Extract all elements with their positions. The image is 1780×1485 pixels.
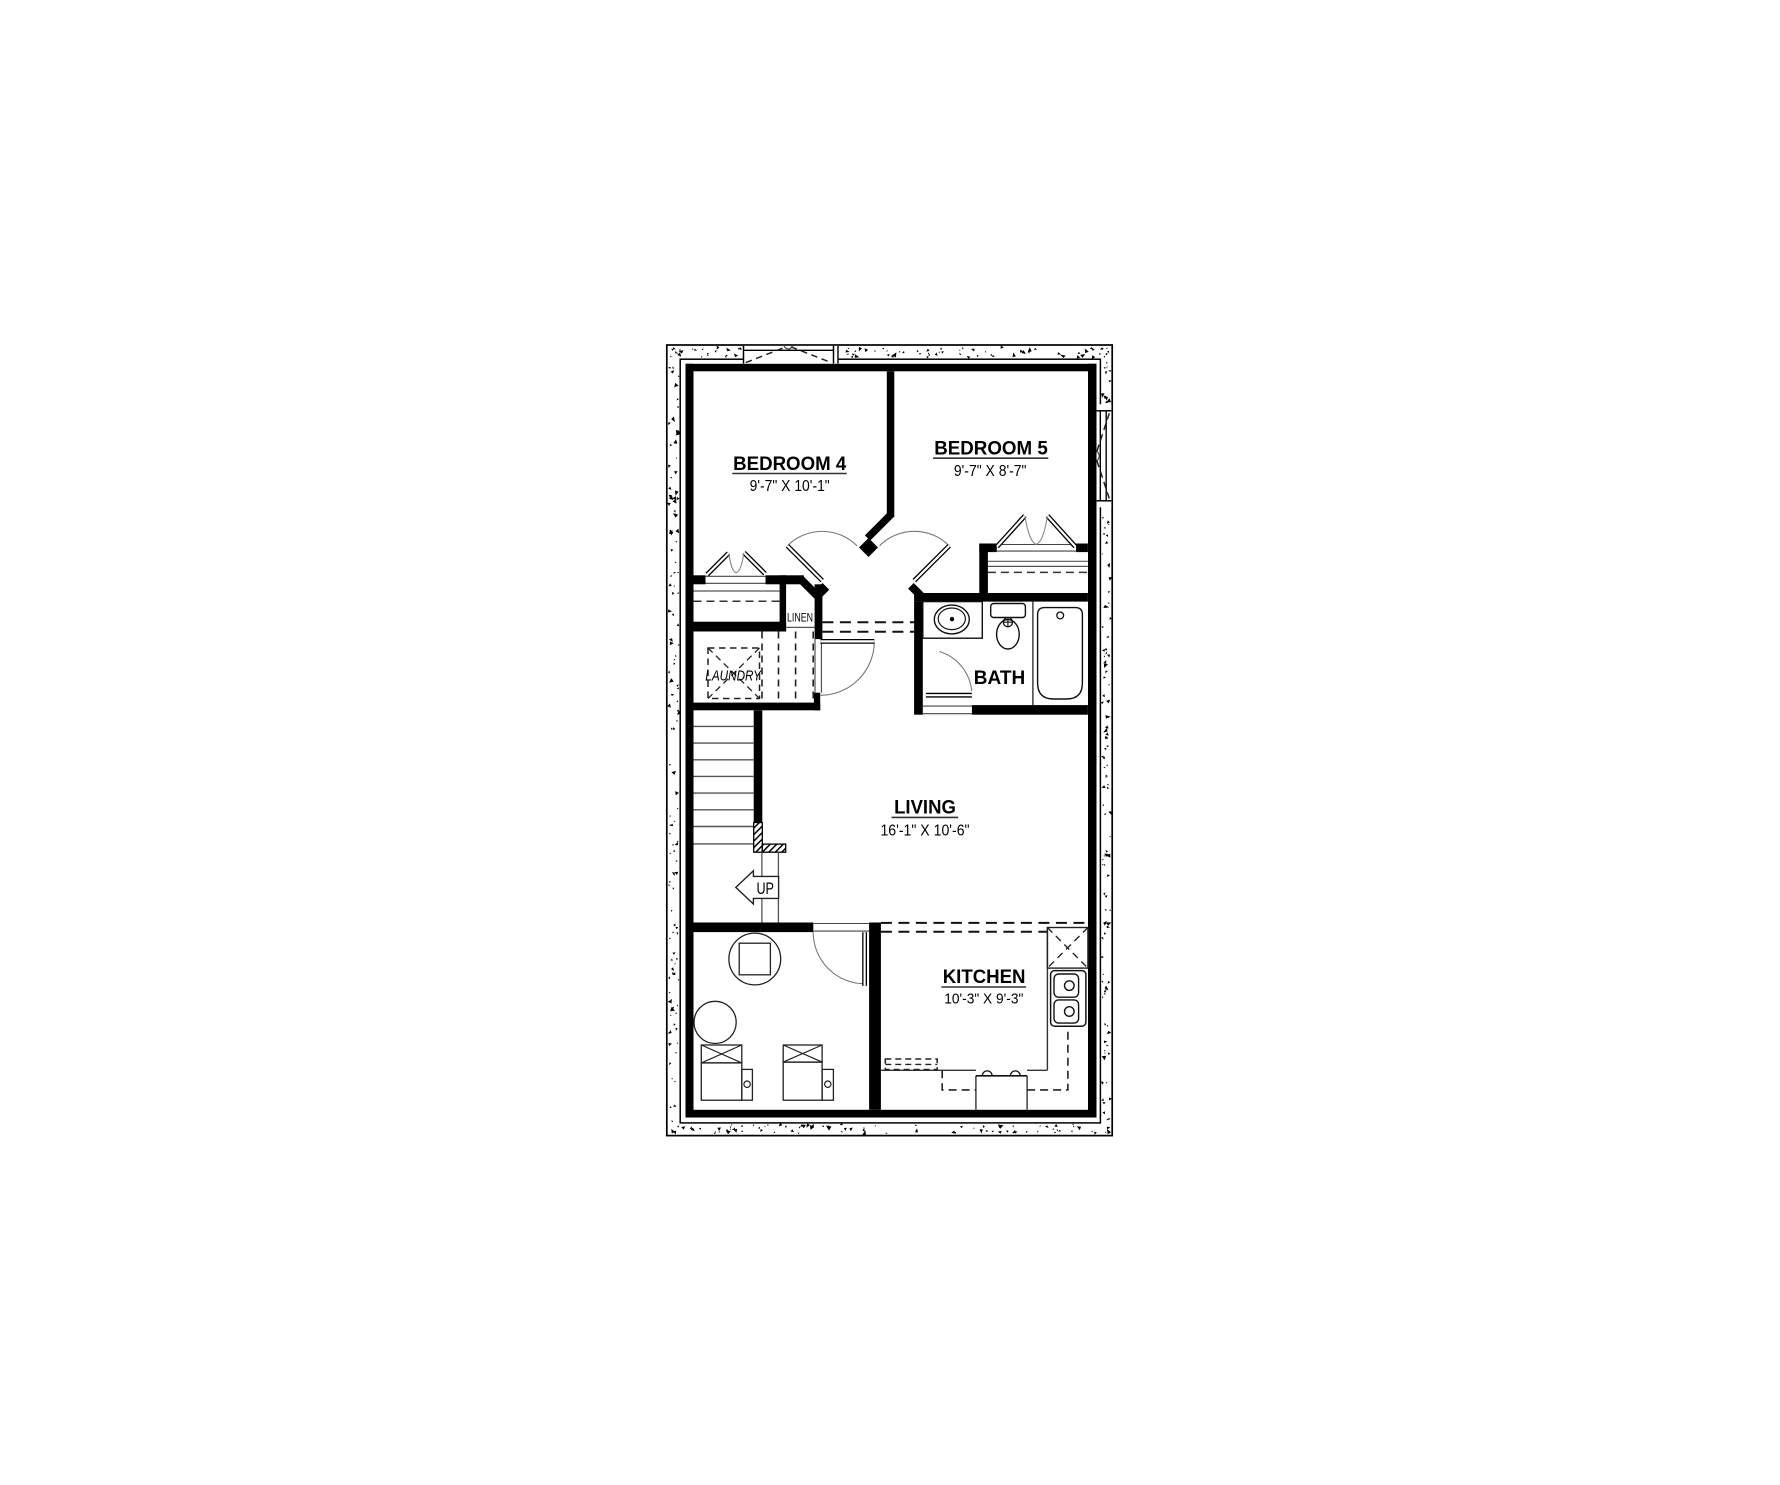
svg-text:UP: UP xyxy=(756,880,774,898)
svg-text:16'-1" X 10'-6": 16'-1" X 10'-6" xyxy=(880,823,969,840)
svg-text:LINEN: LINEN xyxy=(787,610,813,624)
svg-text:BEDROOM 4: BEDROOM 4 xyxy=(733,453,846,475)
svg-text:10'-3" X 9'-3": 10'-3" X 9'-3" xyxy=(944,990,1023,1007)
svg-text:BEDROOM 5: BEDROOM 5 xyxy=(934,438,1048,460)
svg-text:KITCHEN: KITCHEN xyxy=(943,966,1026,988)
svg-text:9'-7" X 10'-1": 9'-7" X 10'-1" xyxy=(750,478,830,495)
svg-text:BATH: BATH xyxy=(974,667,1025,689)
svg-text:LIVING: LIVING xyxy=(894,797,956,819)
svg-text:LAUNDRY: LAUNDRY xyxy=(705,667,761,684)
svg-text:9'-7" X 8'-7": 9'-7" X 8'-7" xyxy=(954,463,1027,480)
